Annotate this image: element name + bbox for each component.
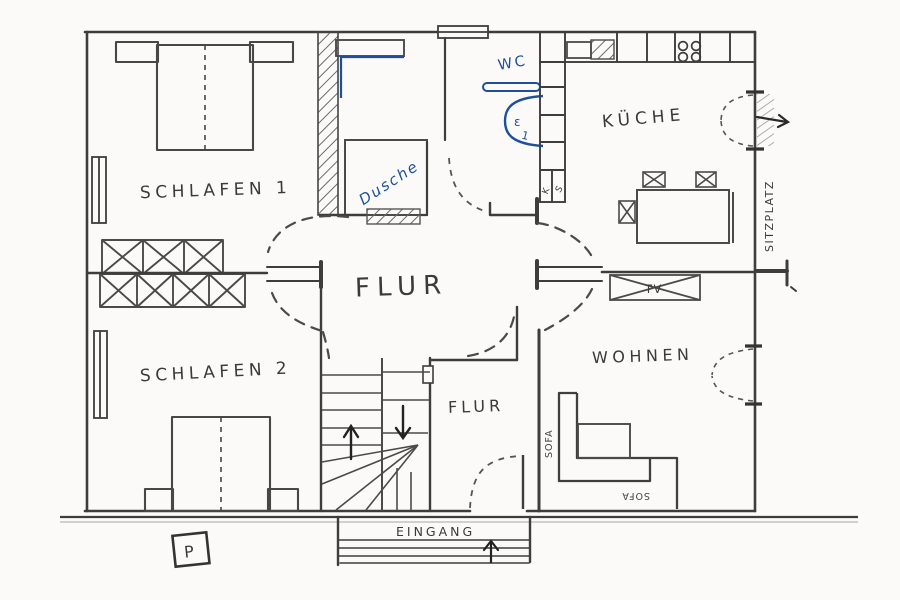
label-flur-lower: FLUR bbox=[448, 396, 505, 417]
floorplan-scan: SCHLAFEN 1 SCHLAFEN 2 Dus bbox=[0, 0, 900, 600]
threshold-hatch bbox=[367, 209, 420, 224]
window-schlafen1 bbox=[92, 157, 106, 223]
label-eingang: EINGANG bbox=[396, 524, 475, 539]
svg-text:ε: ε bbox=[514, 115, 521, 129]
label-sofa-bottom: SOFA bbox=[621, 490, 650, 501]
label-sitzplatz: SITZPLATZ bbox=[763, 180, 776, 252]
floorplan-drawing: SCHLAFEN 1 SCHLAFEN 2 Dus bbox=[0, 0, 900, 600]
label-wohnen: WOHNEN bbox=[592, 345, 694, 368]
wc-shelf bbox=[483, 83, 540, 91]
label-tv: TV bbox=[644, 282, 663, 296]
window-wc bbox=[438, 26, 488, 38]
label-flur-center: FLUR bbox=[354, 270, 448, 303]
window-schlafen2 bbox=[94, 331, 107, 418]
label-sofa-side: SOFA bbox=[544, 429, 555, 458]
door-jamb bbox=[423, 366, 433, 383]
hatched-wall bbox=[318, 32, 338, 215]
